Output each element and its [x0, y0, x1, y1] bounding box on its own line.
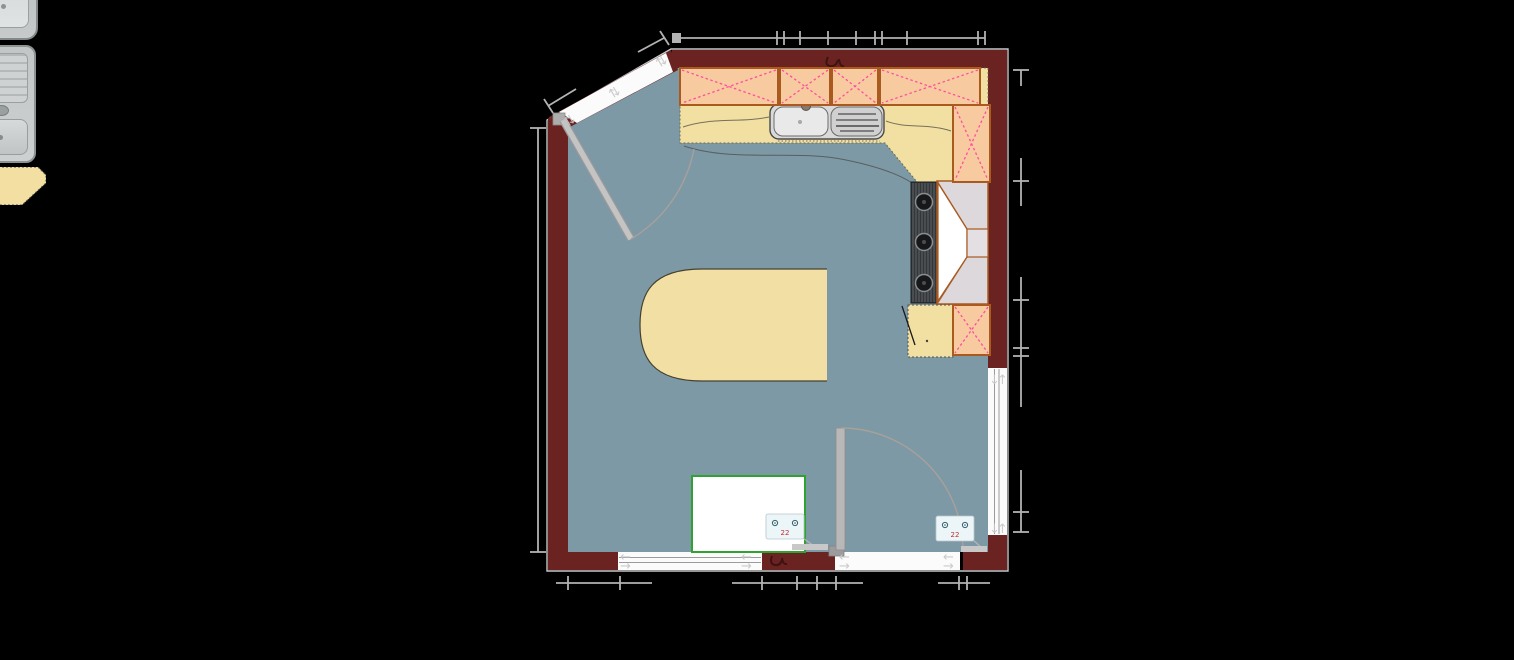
door-leaf[interactable]	[836, 428, 845, 550]
dimension-right	[1013, 70, 1029, 532]
wall-left[interactable]	[548, 118, 568, 570]
planner-stage: 2222 ←→←→←→←→↓↑↓↑⇅⇅⇅	[0, 0, 1514, 660]
island-table[interactable]	[640, 269, 827, 381]
door-opening-bottom[interactable]	[835, 552, 960, 570]
dimension-mark	[638, 38, 664, 52]
opening-arrow-icon: ↑	[997, 373, 1008, 388]
dimension-mark	[548, 89, 576, 106]
burner-icons	[916, 194, 933, 292]
opening-arrow-icon: →	[839, 559, 850, 574]
floor-plan-canvas: 2222 ←→←→←→←→↓↑↓↑⇅⇅⇅	[0, 0, 1514, 660]
wall-bottom-right[interactable]	[963, 552, 1007, 570]
outlet-wall-mark	[961, 546, 987, 552]
dimension-bottom	[556, 576, 990, 590]
cabinet-dot	[926, 340, 928, 342]
kitchen-sink[interactable]	[770, 102, 884, 140]
opening-arrow-icon: →	[741, 559, 752, 574]
wall-cabinet-unit[interactable]	[680, 68, 778, 105]
dimension-top	[672, 31, 985, 45]
dimension-mark	[660, 31, 669, 45]
wall-cabinet-unit[interactable]	[780, 68, 830, 105]
cooktop[interactable]	[911, 182, 937, 303]
dimension-mark	[544, 99, 553, 113]
wall-bottom-middle[interactable]	[762, 552, 835, 570]
dimension-end-square	[672, 33, 681, 43]
socket-rating-mark: 22	[781, 529, 790, 537]
dimension-diagonal-mark	[638, 31, 669, 52]
sink-drain-icon	[798, 120, 802, 124]
wall-cabinet-unit[interactable]	[880, 68, 980, 105]
wall-cabinet-unit[interactable]	[953, 305, 990, 355]
wall-bottom-left[interactable]	[548, 552, 620, 570]
dimension-left	[530, 128, 546, 552]
wall-cabinet-unit[interactable]	[953, 105, 990, 182]
base-cabinet-right[interactable]	[908, 305, 953, 357]
window-right[interactable]	[988, 368, 1007, 535]
wall-cabinet-unit[interactable]	[832, 68, 878, 105]
outlet-wall-mark	[792, 544, 828, 550]
extractor-hood[interactable]	[937, 181, 988, 304]
opening-arrow-icon: →	[620, 559, 631, 574]
countertop-strip[interactable]	[980, 68, 988, 108]
opening-arrow-icon: ↑	[997, 522, 1008, 537]
opening-arrow-icon: →	[943, 559, 954, 574]
socket-rating-mark: 22	[951, 531, 960, 539]
